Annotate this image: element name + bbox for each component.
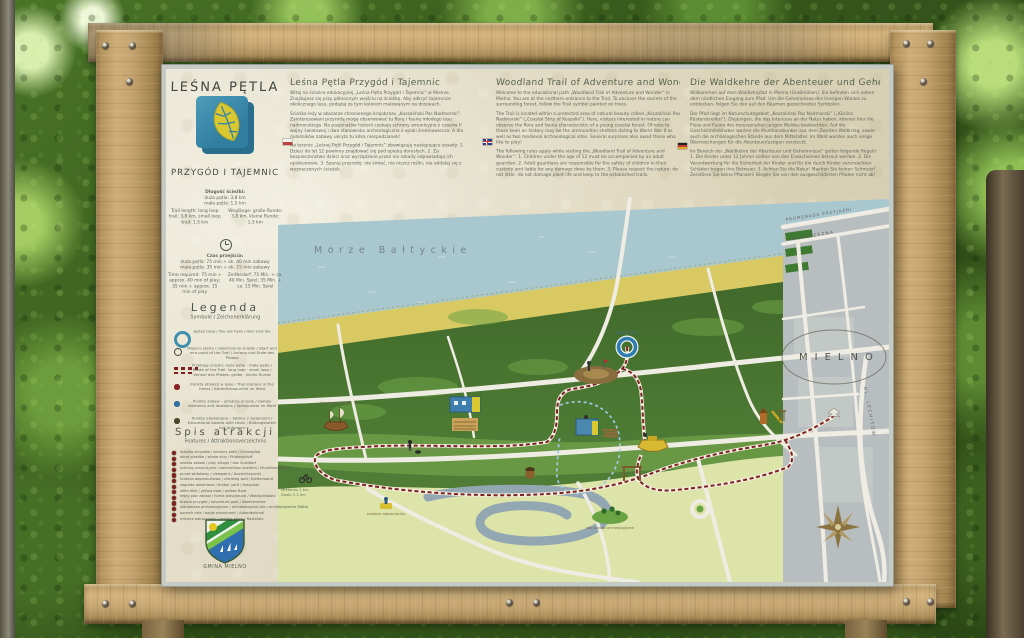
rest-label: miejsce odpoczynku bbox=[367, 511, 406, 516]
forest-point-icon bbox=[174, 384, 180, 390]
intro-paragraph: Der Pfad liegt im Naturschutzgebiet „Kos… bbox=[690, 111, 880, 146]
length-title: Długość ścieżki: bbox=[205, 189, 245, 194]
screw bbox=[102, 42, 109, 49]
attractions-section: Spis atrakcji Features / Attraktionsverz… bbox=[166, 427, 284, 524]
svg-text:MIELNO: MIELNO bbox=[799, 352, 880, 363]
screw bbox=[126, 78, 133, 85]
sidebar-info-column: LEŚNA PĘTLA PRZYGÓD I TAJEMNIC Długość ś… bbox=[166, 69, 284, 582]
map-board-panel: Morze Bałtyckie MIELNO PROMENADA PRZYJAŹ… bbox=[161, 64, 894, 587]
screw bbox=[533, 599, 540, 606]
directions-label-2: Gąski 2,2 km bbox=[281, 492, 306, 497]
board-subtitle: PRZYGÓD I TAJEMNIC bbox=[166, 168, 284, 178]
legend-item: Punkty atrakcji w lesie / Trail stations… bbox=[166, 382, 284, 399]
tree-trunk-right bbox=[986, 170, 1024, 638]
attractions-title: Spis atrakcji bbox=[166, 427, 284, 438]
board-title: LEŚNA PĘTLA bbox=[166, 80, 284, 95]
screw bbox=[506, 599, 513, 606]
length-short: mała pętla: 1,5 km bbox=[204, 201, 246, 206]
legend-item: Punkty zabaw – atrakcje w lesie / Games … bbox=[166, 399, 284, 416]
intro-heading-de: Die Waldkehre der Abenteuer und Geheimni… bbox=[690, 78, 880, 88]
intro-column-en: Woodland Trail of Adventure and Wonder W… bbox=[496, 78, 680, 200]
forest-photo-scene: Morze Bałtyckie MIELNO PROMENADA PRZYJAŹ… bbox=[0, 0, 1024, 638]
screw bbox=[129, 42, 136, 49]
length-en: Trail length: long loop trail: 3,8 km, s… bbox=[167, 208, 222, 225]
time-title: Czas przejścia: bbox=[207, 253, 244, 258]
time-long: duża pętla: 75 min + ok. 40 min zabawy bbox=[180, 259, 269, 264]
time-short: mała pętla: 35 min + ok. 15 min zabawy bbox=[180, 265, 270, 270]
screw bbox=[927, 40, 934, 47]
log-pile-icon bbox=[602, 429, 618, 437]
screw bbox=[102, 600, 109, 607]
intro-heading-pl: Leśna Pętla Przygód i Tajemnic bbox=[290, 78, 474, 88]
intro-column-de: Die Waldkehre der Abenteuer und Geheimni… bbox=[690, 78, 880, 200]
start-end-circle-icon bbox=[174, 348, 182, 356]
intro-column-pl: Leśna Pętla Przygód i Tajemnic Witaj na … bbox=[290, 78, 474, 200]
arch-label: stanowisko archeologiczne bbox=[586, 526, 635, 530]
time-de: Zeitbedarf: 75 Min. + ca. 40 Min. Spiel;… bbox=[228, 272, 283, 295]
length-de: Weglänge: große Runde: 3,8 km, kleine Ru… bbox=[228, 208, 283, 225]
leaf-logo bbox=[196, 96, 254, 162]
legend-item: Przebieg ścieżki: duża pętla · mała pętl… bbox=[166, 363, 284, 382]
trail-map: Morze Bałtyckie MIELNO PROMENADA PRZYJAŹ… bbox=[278, 197, 889, 582]
frame-right-plank bbox=[890, 30, 956, 608]
legend-section: Legenda Symbole / Zeichenerklärung Jeste… bbox=[166, 301, 284, 433]
intro-paragraph: The Trail is located within a protected … bbox=[496, 111, 680, 146]
frame-top-plank bbox=[88, 23, 933, 62]
poland-flag-icon bbox=[283, 139, 292, 145]
play-point-icon bbox=[174, 401, 180, 407]
intro-paragraph: Na terenie „Leśnej Pętli Przygód i Tajem… bbox=[290, 143, 474, 172]
length-long: duża pętla: 3,8 km bbox=[204, 195, 245, 200]
you-are-here-label: jesteś tutaj bbox=[615, 330, 638, 335]
leaf-icon bbox=[200, 98, 250, 150]
frame-left-plank bbox=[96, 30, 163, 608]
attractions-subtitle: Features / Attraktionsverzeichnis bbox=[166, 438, 283, 444]
screw bbox=[903, 40, 910, 47]
sign-post-right bbox=[845, 620, 887, 638]
ship-label: ścieżka zmysłów bbox=[320, 400, 352, 405]
education-point-icon bbox=[174, 418, 180, 424]
municipality-label: GMINA MIELNO bbox=[190, 564, 261, 569]
tree-trunk-left bbox=[0, 0, 15, 638]
intro-paragraph: Welcome to the educational path „Woodlan… bbox=[496, 90, 680, 107]
intro-paragraph: The following rules apply while visiting… bbox=[496, 149, 680, 178]
printed-map: Morze Bałtyckie MIELNO PROMENADA PRZYJAŹ… bbox=[166, 69, 889, 582]
screw bbox=[920, 78, 927, 85]
coat-of-arms bbox=[204, 518, 246, 568]
intro-paragraph: Witaj na ścieżce edukacyjnej „Leśna Pętl… bbox=[290, 90, 474, 107]
crop-field-icon bbox=[452, 418, 478, 431]
intro-paragraph: Im Bereich der „Waldkehre der Abenteuer … bbox=[690, 149, 880, 178]
screw bbox=[903, 598, 910, 605]
time-en: Time required: 75 min + approx. 40 min o… bbox=[167, 272, 222, 295]
intro-paragraph: Willkommen auf dem Waldlehrpfad in Mieln… bbox=[690, 90, 880, 107]
legend-item: Miejsce startu i zakończenia ścieżki / S… bbox=[166, 346, 284, 363]
germany-flag-icon bbox=[678, 143, 687, 149]
clock-icon bbox=[220, 239, 232, 251]
legend-subtitle: Symbole / Zeichenerklärung bbox=[166, 314, 283, 320]
screw bbox=[927, 598, 934, 605]
play-village-icon bbox=[450, 397, 480, 412]
wood-weathering bbox=[88, 23, 933, 62]
uk-flag-icon bbox=[483, 139, 492, 145]
intro-paragraph: Ścieżka leży w obszarze chronionego kraj… bbox=[290, 111, 474, 140]
sign-post-left bbox=[142, 620, 184, 638]
legend-title: Legenda bbox=[166, 301, 284, 314]
sea-label: Morze Bałtyckie bbox=[314, 245, 472, 256]
legend-item: Jesteś tutaj / You are here / Hier sind … bbox=[166, 329, 284, 346]
intro-heading-en: Woodland Trail of Adventure and Wonder bbox=[496, 78, 680, 88]
screw bbox=[129, 600, 136, 607]
